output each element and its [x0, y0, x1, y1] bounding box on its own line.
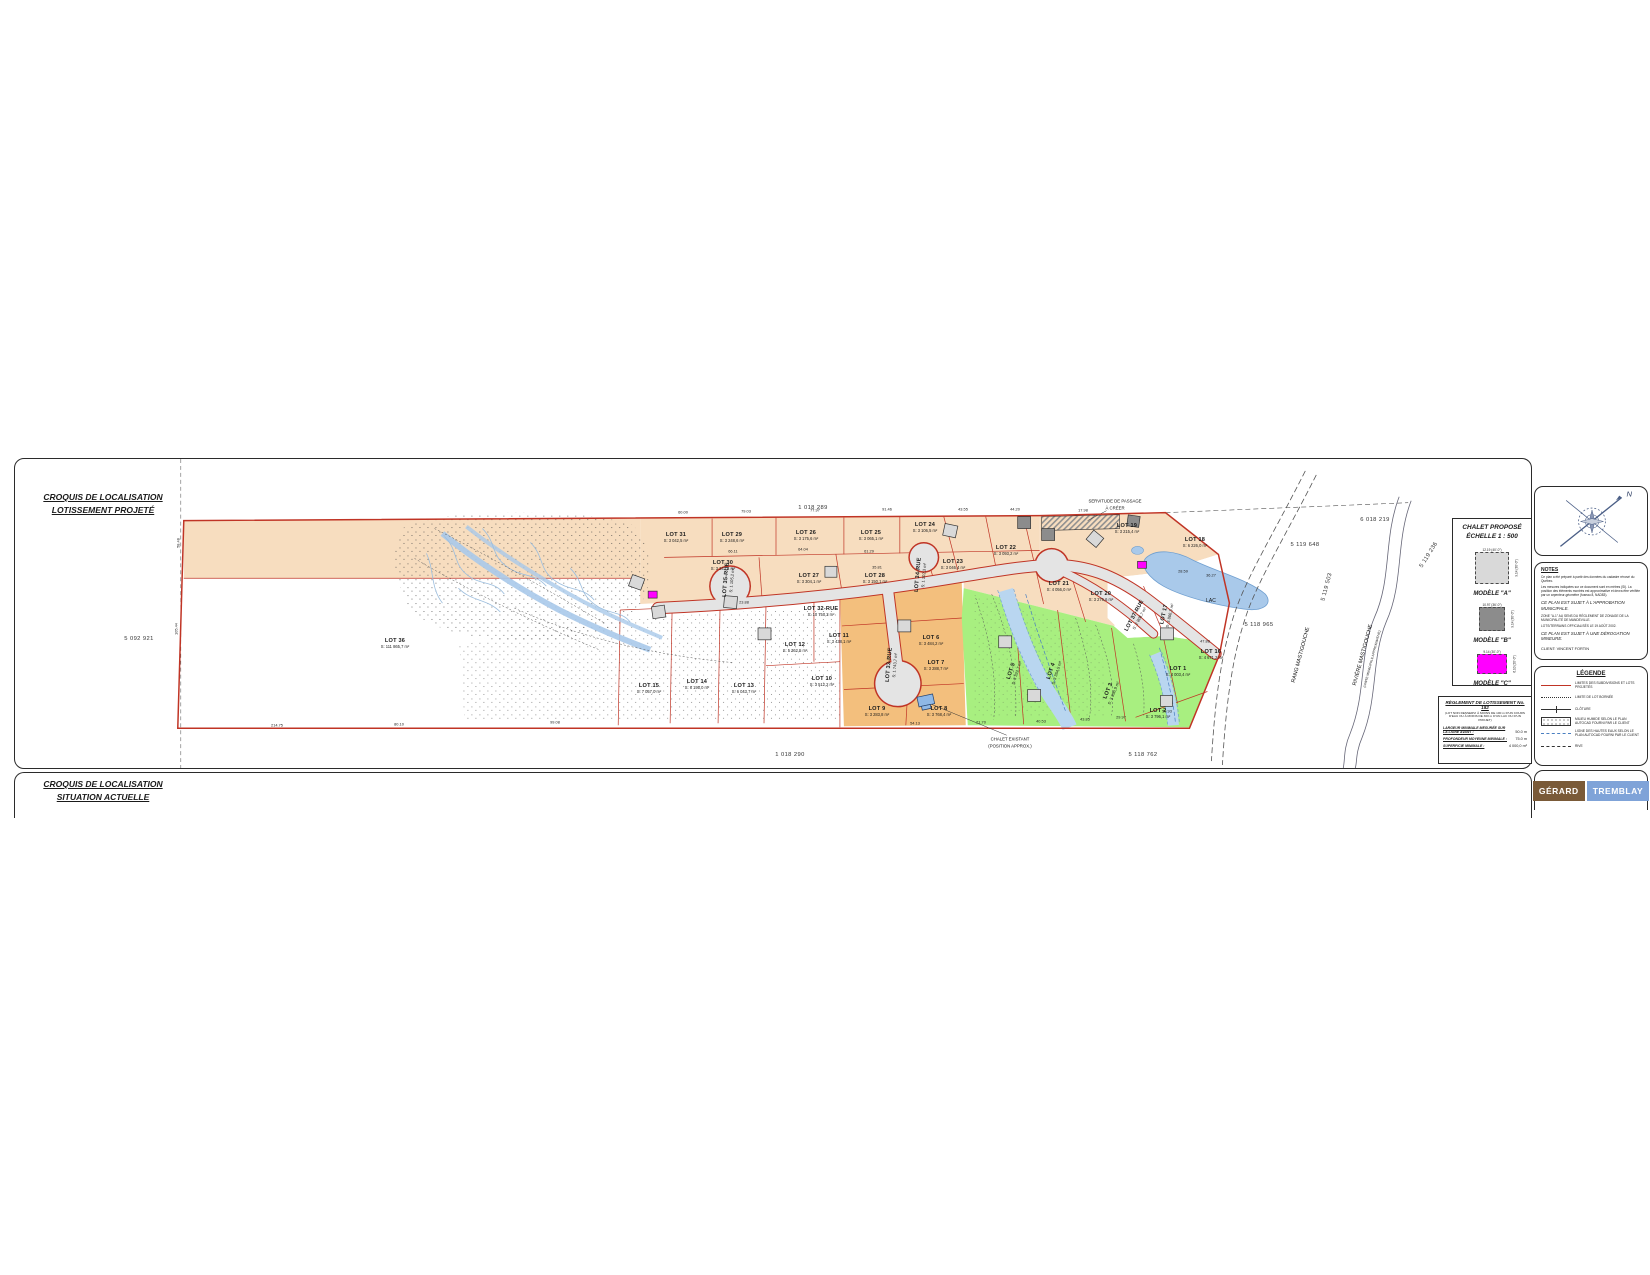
- tick-line-symbol: [1541, 705, 1571, 714]
- notes-zone: ZONE "A-1" AU SENS DU RÈGLEMENT DE ZONAG…: [1541, 614, 1641, 622]
- model-side-dimension: 6.10 (20'-0"): [1512, 655, 1516, 672]
- notes-line: Les mesures indiquées sur ce document so…: [1541, 585, 1641, 597]
- chalet-propose-block: CHALET PROPOSÉ ÉCHELLE 1 : 500 12.19 (40…: [1452, 518, 1532, 686]
- pond: [1132, 546, 1144, 554]
- reglement-subtitle: (LOT NON DESSERVI À MOINS DE 100 m D'UN …: [1443, 712, 1527, 724]
- legende-panel: LÉGENDE LIMITES DES SUBDIVISIONS ET LOTS…: [1534, 666, 1648, 766]
- blue-dash-symbol: [1541, 729, 1571, 738]
- reglement-row-label: SUPERFICIE MINIMALE :: [1443, 744, 1484, 748]
- model-side-dimension: 9.14 (30'-0"): [1510, 610, 1514, 627]
- chalet-models: 12.19 (40'-0")9.14 (30'-0")MODÈLE "A"10.…: [1453, 548, 1531, 687]
- model-box-wrap: 6.10 (20'-0"): [1477, 654, 1507, 674]
- legend-item: LIGNE DES HAUTES EAUX SELON LE PLAN AUTO…: [1541, 729, 1641, 738]
- notes-title: NOTES: [1541, 567, 1641, 573]
- legend-item-label: RIVE: [1575, 744, 1583, 748]
- long-dash-symbol: [1541, 741, 1571, 750]
- chalet-title-line2: ÉCHELLE 1 : 500: [1453, 533, 1531, 542]
- chalet-model-box: [1475, 552, 1509, 584]
- reglement-block: RÈGLEMENT DE LOTISSEMENT No. 182 (LOT NO…: [1438, 696, 1532, 764]
- legend-item: LIMITE DE LOT BORNÉE: [1541, 692, 1641, 701]
- chalet-model-label: MODÈLE "B": [1453, 638, 1531, 644]
- reglement-rows: LARGEUR MINIMALE MESURÉE SUR LA LIGNE AV…: [1443, 726, 1527, 749]
- plan-sheet-lotissement: CROQUIS DE LOCALISATION LOTISSEMENT PROJ…: [14, 458, 1532, 769]
- chalet-model-box: [1477, 654, 1507, 674]
- notes-derogation: CE PLAN EST SUJET À UNE DÉROGATION MINEU…: [1541, 631, 1641, 642]
- legend-item: CLÔTURE: [1541, 705, 1641, 714]
- reglement-row: SUPERFICIE MINIMALE :4 000,0 m²: [1443, 744, 1527, 748]
- reglement-row-label: LARGEUR MINIMALE MESURÉE SUR LA LIGNE AV…: [1443, 726, 1507, 735]
- notes-line: Ce plan a été préparé à partir des donné…: [1541, 575, 1641, 583]
- wetland-box-symbol: [1541, 717, 1571, 726]
- reglement-row: LARGEUR MINIMALE MESURÉE SUR LA LIGNE AV…: [1443, 726, 1527, 735]
- surveyor-logo-panel: GÉRARD TREMBLAY: [1534, 770, 1648, 810]
- logo-gerard: GÉRARD: [1533, 781, 1585, 801]
- red-line-symbol: [1541, 680, 1571, 689]
- sheet2-title-line2: SITUATION ACTUELLE: [37, 791, 169, 804]
- legend-item-label: CLÔTURE: [1575, 707, 1591, 711]
- legende-items: LIMITES DES SUBDIVISIONS ET LOTS PROJETÉ…: [1541, 680, 1641, 750]
- reglement-row-value: 75.0 m: [1515, 737, 1527, 741]
- chalet-title-line1: CHALET PROPOSÉ: [1453, 524, 1531, 533]
- reglement-row: PROFONDEUR MOYENNE MINIMALE :75.0 m: [1443, 737, 1527, 741]
- legend-item-label: MILIEU HUMIDE SELON LE PLAN AUTOCAD FOUR…: [1575, 717, 1641, 725]
- model-box-wrap: 9.14 (30'-0"): [1475, 552, 1509, 584]
- notes-lines: Ce plan a été préparé à partir des donné…: [1541, 575, 1641, 597]
- chalet-model: 9.14 (30'-0")6.10 (20'-0")MODÈLE "C": [1453, 650, 1531, 687]
- sheet2-title-line1: CROQUIS DE LOCALISATION: [37, 778, 169, 791]
- reglement-row-value: 50.0 m: [1515, 730, 1527, 734]
- legend-item-label: LIMITES DES SUBDIVISIONS ET LOTS PROJETÉ…: [1575, 681, 1641, 689]
- culdesac-33: [875, 661, 920, 706]
- logo-tremblay: TREMBLAY: [1587, 781, 1649, 801]
- culdesac-34: [910, 543, 938, 571]
- reglement-title: RÈGLEMENT DE LOTISSEMENT No. 182: [1443, 700, 1527, 710]
- sheet1-title: CROQUIS DE LOCALISATION LOTISSEMENT PROJ…: [37, 491, 169, 517]
- sheet2-title: CROQUIS DE LOCALISATION SITUATION ACTUEL…: [37, 778, 169, 804]
- notes-panel: NOTES Ce plan a été préparé à partir des…: [1534, 562, 1648, 660]
- plan-drawing: [15, 459, 1531, 768]
- legend-item: LIMITES DES SUBDIVISIONS ET LOTS PROJETÉ…: [1541, 680, 1641, 689]
- sheet1-title-line1: CROQUIS DE LOCALISATION: [37, 491, 169, 504]
- legend-item-label: LIGNE DES HAUTES EAUX SELON LE PLAN AUTO…: [1575, 729, 1641, 737]
- legende-title: LÉGENDE: [1541, 671, 1641, 677]
- plan-sheet-situation: CROQUIS DE LOCALISATION SITUATION ACTUEL…: [14, 772, 1532, 818]
- chalet-model-box: [1479, 607, 1505, 631]
- legend-item: RIVE: [1541, 741, 1641, 750]
- chalet-block-title: CHALET PROPOSÉ ÉCHELLE 1 : 500: [1453, 524, 1531, 542]
- page: CROQUIS DE LOCALISATION LOTISSEMENT PROJ…: [0, 0, 1650, 1275]
- sheet1-title-line2: LOTISSEMENT PROJETÉ: [37, 504, 169, 517]
- servitude-hatch: [1042, 515, 1120, 531]
- notes-client: CLIENT: VINCENT FORTIN: [1541, 646, 1641, 651]
- chalet-model: 10.97 (36'-0")9.14 (30'-0")MODÈLE "B": [1453, 603, 1531, 644]
- compass-rose-icon: N: [1535, 487, 1649, 554]
- riviere-mastigouche: [1343, 497, 1411, 768]
- legend-item: MILIEU HUMIDE SELON LE PLAN AUTOCAD FOUR…: [1541, 717, 1641, 726]
- compass-north-label: N: [1626, 490, 1632, 499]
- notes-approbation: CE PLAN EST SUJET À L'APPROBATION MUNICI…: [1541, 600, 1641, 611]
- chalet-model: 12.19 (40'-0")9.14 (30'-0")MODÈLE "A": [1453, 548, 1531, 597]
- compass-panel: N: [1534, 486, 1648, 556]
- legend-item-label: LIMITE DE LOT BORNÉE: [1575, 695, 1613, 699]
- reglement-row-value: 4 000,0 m²: [1509, 744, 1527, 748]
- chalet-model-label: MODÈLE "A": [1453, 591, 1531, 597]
- chalet-model-label: MODÈLE "C": [1453, 681, 1531, 687]
- model-side-dimension: 9.14 (30'-0"): [1514, 559, 1518, 576]
- dotted-line-symbol: [1541, 692, 1571, 701]
- limit-dashed-line: [1165, 503, 1408, 513]
- reglement-row-label: PROFONDEUR MOYENNE MINIMALE :: [1443, 737, 1507, 741]
- model-box-wrap: 9.14 (30'-0"): [1479, 607, 1505, 631]
- culdesac-32: [1036, 549, 1068, 581]
- notes-officialises: LOTS/TERRAINS OFFICIALISÉS LE 19 AOÛT 20…: [1541, 624, 1641, 628]
